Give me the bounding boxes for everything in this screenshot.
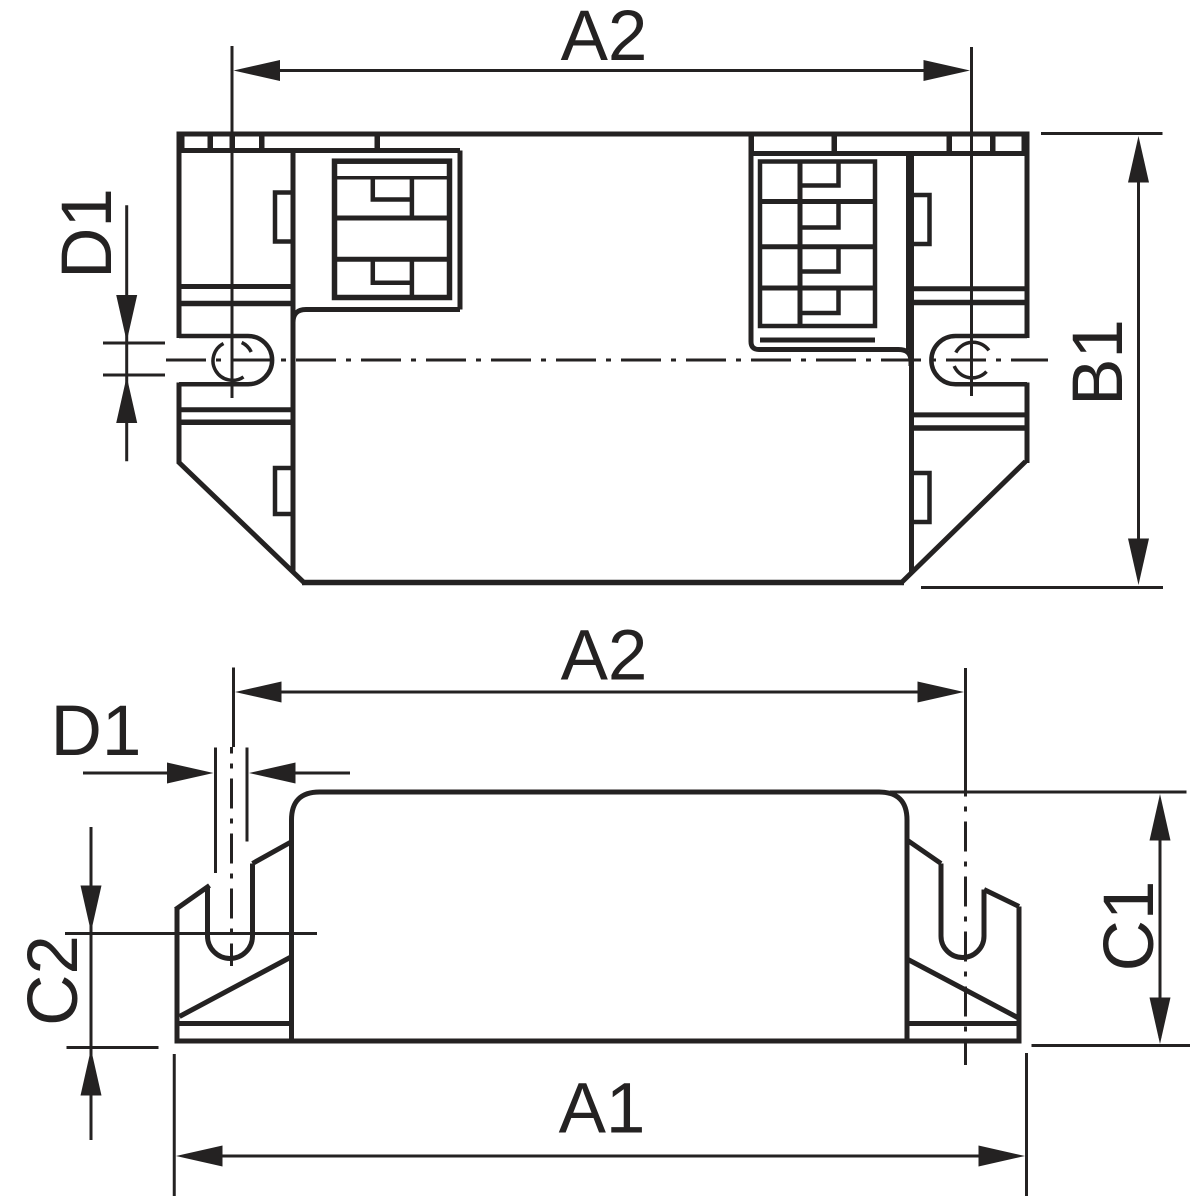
svg-text:A2: A2 [561, 0, 648, 76]
svg-text:D1: D1 [48, 188, 127, 279]
svg-text:A1: A1 [559, 1070, 646, 1149]
svg-text:C2: C2 [14, 935, 93, 1026]
svg-text:B1: B1 [1059, 319, 1138, 406]
svg-text:C1: C1 [1090, 881, 1169, 972]
svg-text:D1: D1 [51, 692, 142, 771]
svg-text:A2: A2 [561, 617, 648, 696]
